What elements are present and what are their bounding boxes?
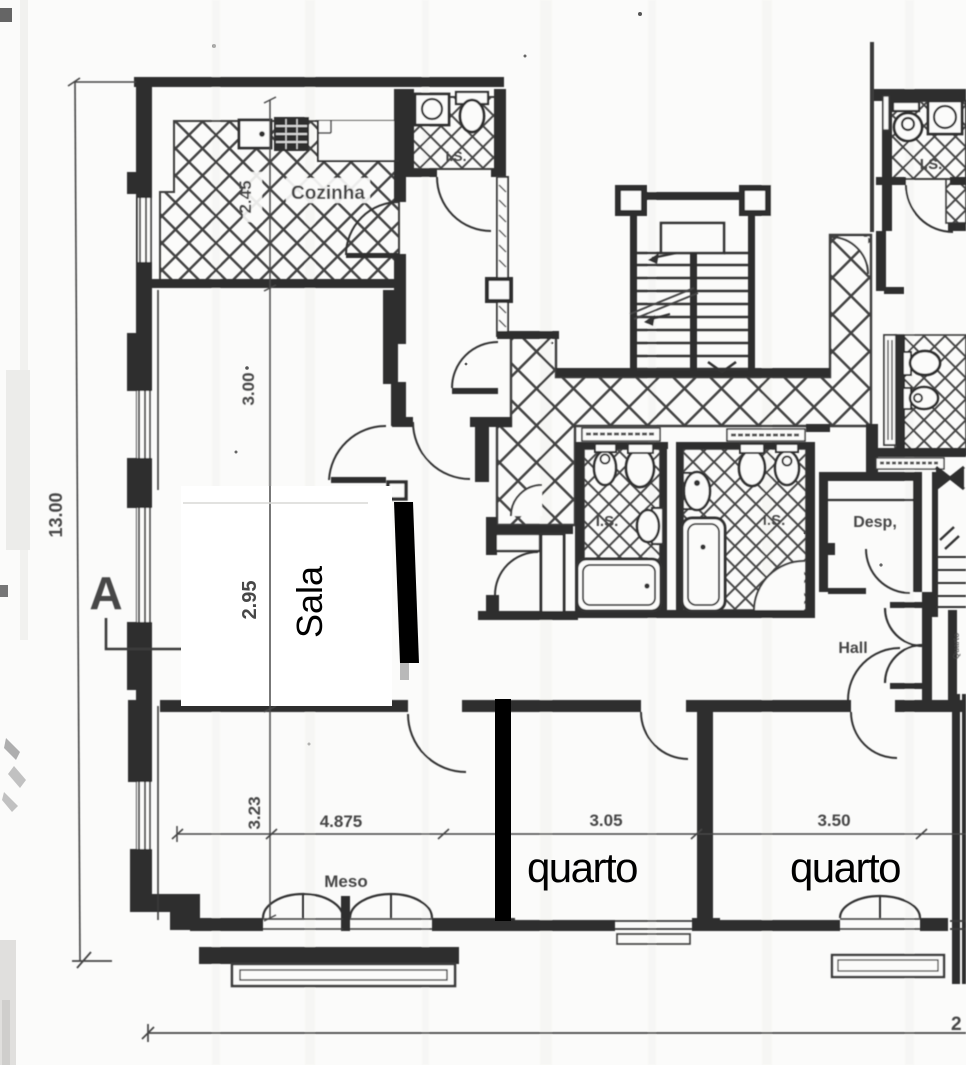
- svg-text:I.S.: I.S.: [920, 156, 943, 173]
- svg-text:2.45: 2.45: [236, 180, 255, 213]
- svg-text:2.95: 2.95: [239, 581, 261, 620]
- svg-text:Desp,: Desp,: [853, 514, 897, 531]
- svg-text:2: 2: [951, 1014, 962, 1035]
- svg-text:Meso: Meso: [324, 872, 367, 891]
- svg-text:I.S.: I.S.: [596, 513, 619, 530]
- svg-text:3.50: 3.50: [817, 811, 850, 830]
- svg-text:I.S.: I.S.: [445, 148, 466, 164]
- svg-text:A: A: [89, 567, 122, 619]
- svg-text:I.S.: I.S.: [763, 512, 786, 529]
- svg-text:quarto: quarto: [527, 844, 637, 891]
- svg-text:3.05: 3.05: [589, 811, 622, 830]
- svg-text:Cozinha: Cozinha: [291, 183, 365, 204]
- svg-text:Hall: Hall: [838, 640, 867, 657]
- svg-text:Sala: Sala: [289, 565, 330, 638]
- svg-text:13.00: 13.00: [46, 492, 66, 537]
- svg-text:4.875: 4.875: [320, 812, 363, 831]
- svg-text:quarto: quarto: [790, 844, 900, 891]
- svg-text:3.23: 3.23: [245, 796, 264, 829]
- svg-text:Quarto: Quarto: [952, 633, 961, 659]
- svg-text:3.00: 3.00: [239, 372, 258, 405]
